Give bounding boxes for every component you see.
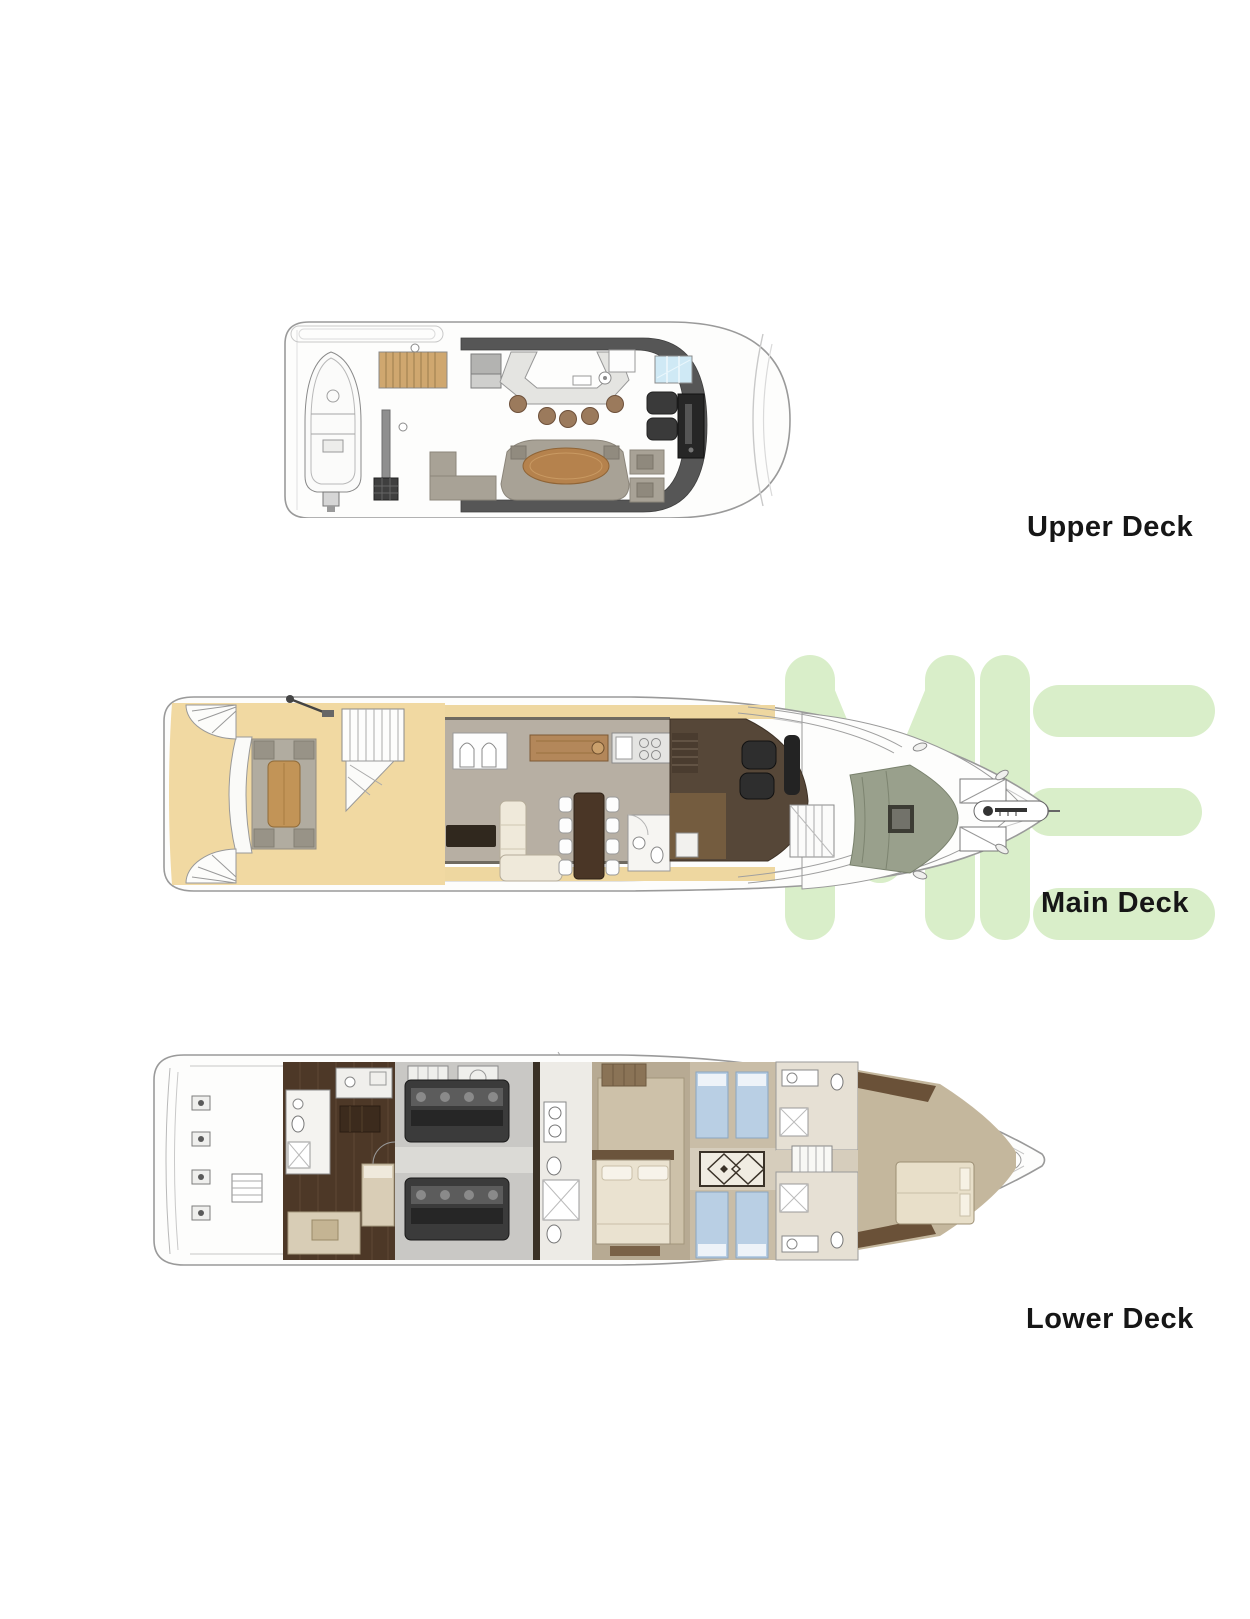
lounge-sofa (501, 440, 629, 500)
storage-cabinet (471, 354, 501, 388)
upper-deck-label: Upper Deck (1027, 511, 1193, 544)
helm-seat (742, 741, 776, 769)
guest-cabins (690, 1062, 776, 1260)
tender-boat-icon (305, 352, 361, 512)
helm-station (670, 719, 808, 861)
flybridge-stairs (379, 352, 447, 388)
main-deck-plan (150, 683, 1065, 898)
engine-starboard (405, 1178, 509, 1240)
day-head (628, 815, 670, 871)
engine-room (373, 1062, 533, 1260)
lower-deck-label: Lower Deck (1026, 1303, 1194, 1336)
upper-deck-plan (275, 318, 825, 518)
side-deck-port (445, 705, 775, 719)
skylight-hot-tub (655, 356, 692, 383)
main-deck-label: Main Deck (1041, 887, 1189, 920)
engine-port (405, 1080, 509, 1142)
galley-module (609, 350, 635, 372)
salon-tv (446, 825, 496, 847)
companionway-stairs (790, 805, 834, 857)
crew-quarters (283, 1062, 395, 1260)
deck-hatch (399, 423, 407, 431)
tv-cabinet (678, 394, 704, 458)
lower-deck-plan (140, 1046, 1060, 1276)
mid-bathroom (540, 1062, 592, 1260)
master-headboard (592, 1150, 674, 1160)
master-cabin (592, 1062, 690, 1260)
vip-cabin (858, 1070, 1021, 1250)
deck-hatch (411, 344, 419, 352)
bulkhead (533, 1062, 540, 1260)
forward-bathrooms (776, 1062, 858, 1260)
helm-seat (740, 773, 774, 799)
